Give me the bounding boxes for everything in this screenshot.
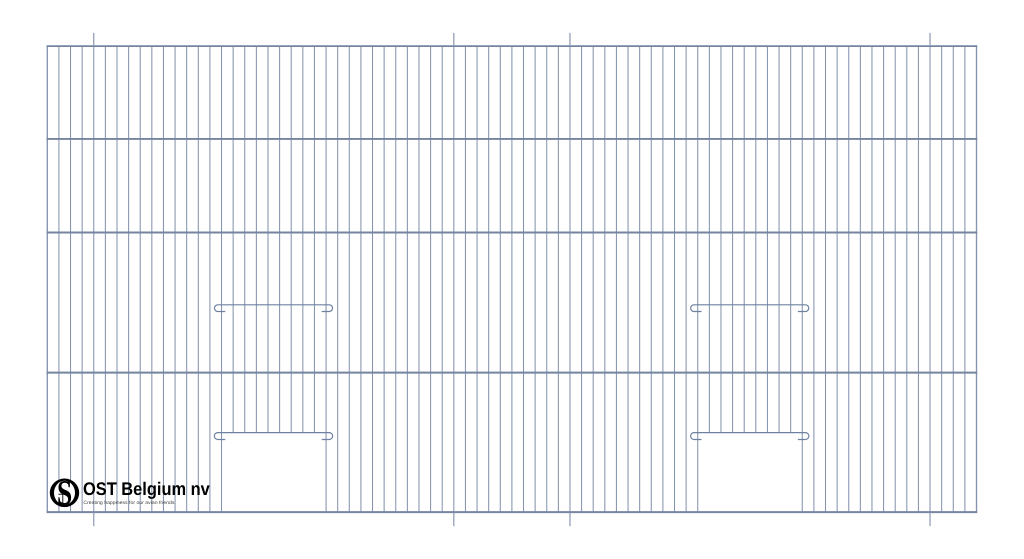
svg-text:Creating happiness for our avi: Creating happiness for our avian friends	[83, 500, 175, 506]
svg-text:OST Belgium nv: OST Belgium nv	[83, 478, 211, 499]
svg-text:S: S	[57, 473, 72, 513]
